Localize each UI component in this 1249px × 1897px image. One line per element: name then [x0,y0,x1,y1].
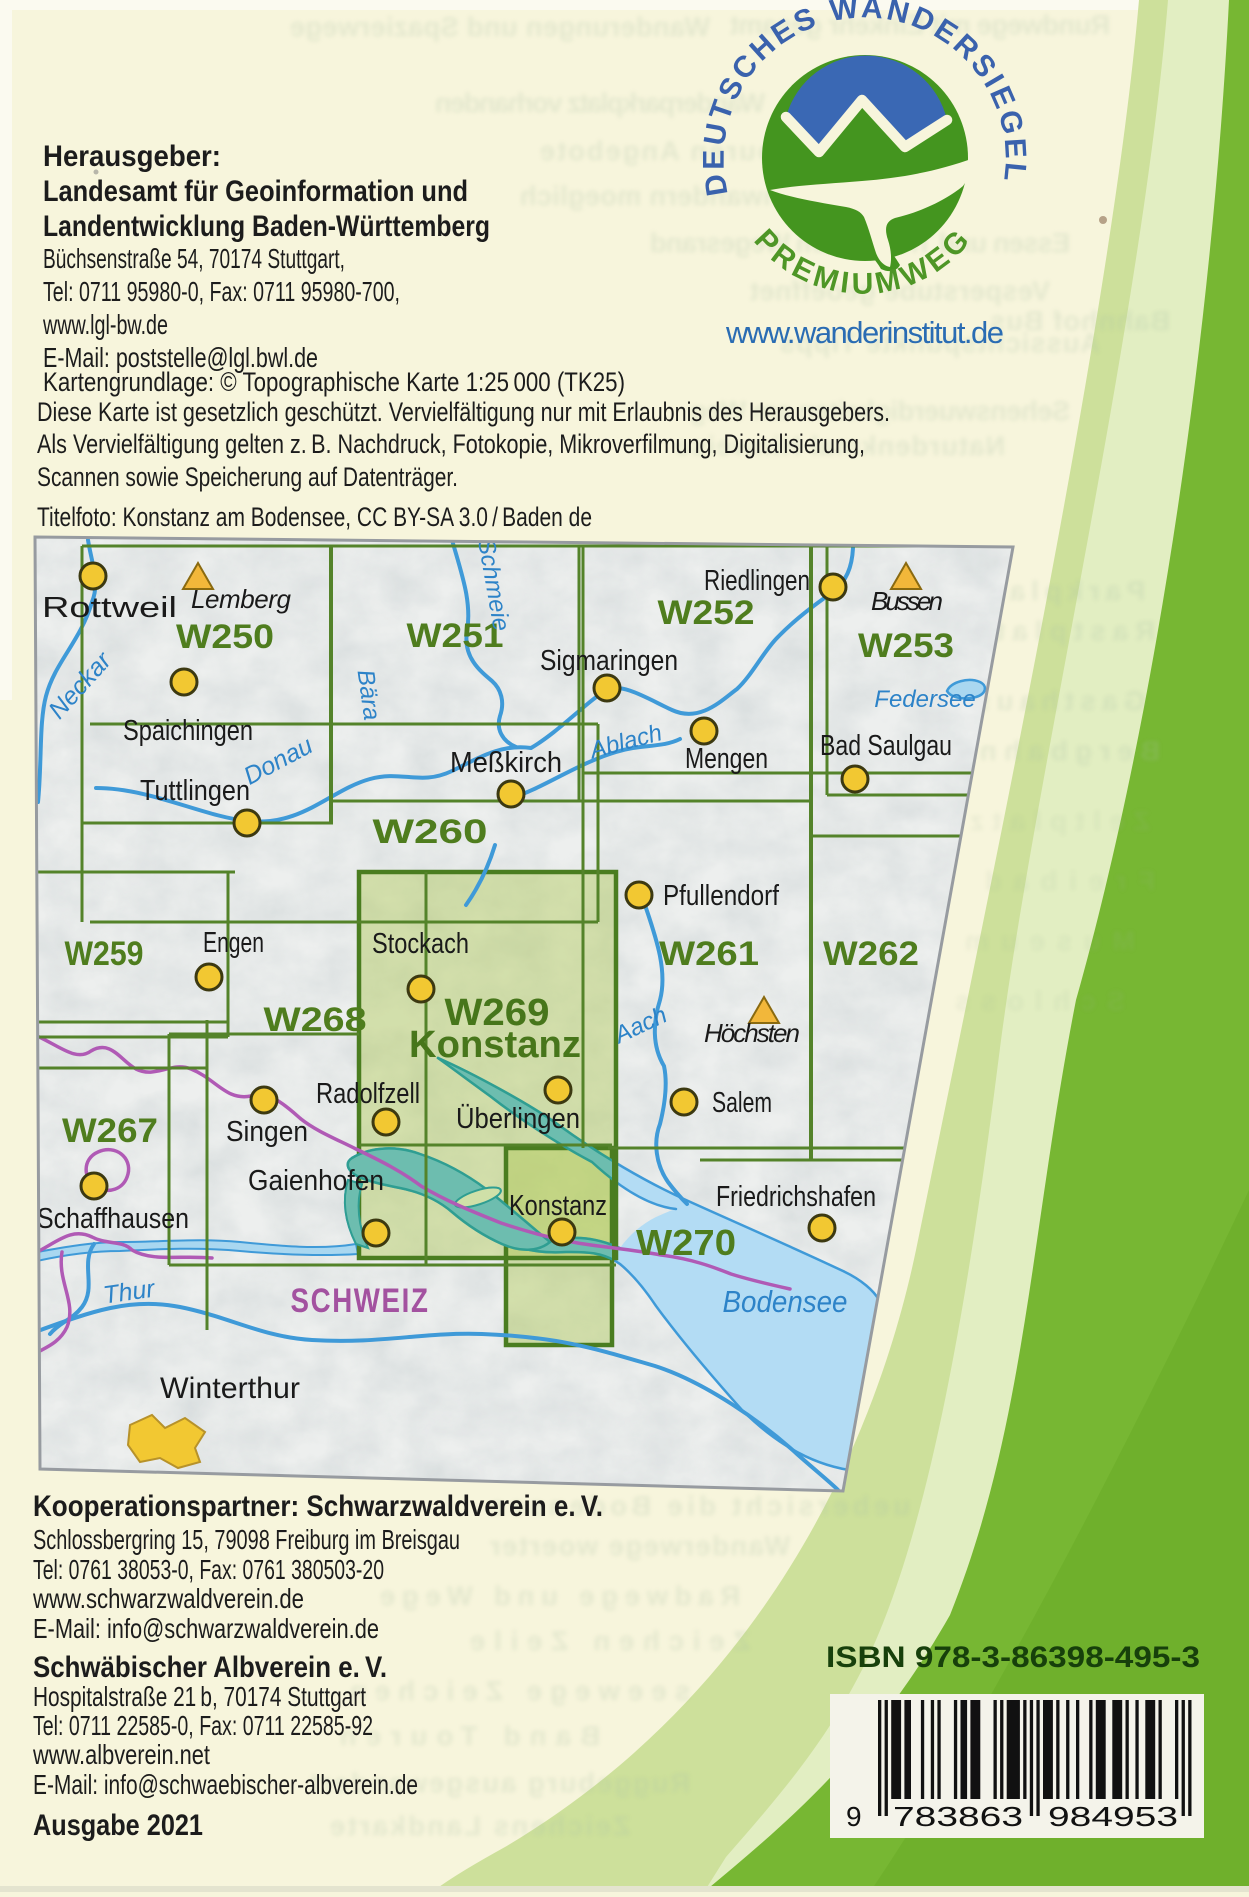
svg-text:E-Mail: info@schwarzwaldverein: E-Mail: info@schwarzwaldverein.de [33,1613,379,1644]
svg-text:9: 9 [846,1801,862,1832]
svg-text:Kooperationspartner: Schwarzwa: Kooperationspartner: Schwarzwaldverein e… [33,1490,603,1523]
svg-text:W259: W259 [65,935,144,973]
svg-text:Büchsenstraße 54, 70174 Stuttg: Büchsenstraße 54, 70174 Stuttgart, [43,243,345,274]
svg-text:Tel: 0711 22585-0, Fax: 0711 2: Tel: 0711 22585-0, Fax: 0711 22585-92 [33,1710,373,1741]
svg-text:Friedrichshafen: Friedrichshafen [716,1181,876,1213]
svg-text:www.schwarzwaldverein.de: www.schwarzwaldverein.de [32,1583,304,1614]
svg-text:Hospitalstraße 21 b, 70174 Stu: Hospitalstraße 21 b, 70174 Stuttgart [33,1681,366,1712]
svg-text:Landesamt für Geoinformation u: Landesamt für Geoinformation und [43,175,468,208]
svg-text:Spaichingen: Spaichingen [123,715,253,747]
svg-text:W267: W267 [62,1112,158,1150]
svg-text:Bad Saulgau: Bad Saulgau [820,730,952,762]
svg-text:Schwäbischer Albverein e. V.: Schwäbischer Albverein e. V. [33,1651,387,1684]
svg-text:W260: W260 [373,813,488,851]
svg-text:Federsee: Federsee [874,686,975,713]
svg-text:Salem: Salem [712,1087,772,1119]
svg-text:Landentwicklung Baden-Württemb: Landentwicklung Baden-Württemberg [43,210,490,243]
svg-text:Sigmaringen: Sigmaringen [540,645,678,677]
svg-text:ISBN 978-3-86398-495-3: ISBN 978-3-86398-495-3 [826,1641,1200,1674]
svg-text:W252: W252 [658,594,755,632]
svg-text:984953: 984953 [1048,1801,1178,1832]
svg-text:W250: W250 [176,618,274,656]
svg-text:Bussen: Bussen [871,586,943,616]
svg-text:Winterthur: Winterthur [160,1372,300,1405]
svg-text:Tel: 0711 95980-0, Fax: 0711 9: Tel: 0711 95980-0, Fax: 0711 95980-700, [43,276,400,307]
svg-text:Stockach: Stockach [372,928,469,960]
svg-text:E-Mail: info@schwaebischer-alb: E-Mail: info@schwaebischer-albverein.de [33,1769,418,1800]
svg-text:Rastplatz: Rastplatz [975,616,1155,646]
svg-text:Gaienhofen: Gaienhofen [248,1165,384,1197]
svg-text:Singen: Singen [226,1116,308,1148]
svg-text:Höchsten: Höchsten [704,1018,800,1048]
svg-text:Bahnhof Bus: Bahnhof Bus [990,306,1170,336]
svg-text:Engen: Engen [203,927,264,959]
svg-text:Mengen: Mengen [685,743,768,775]
svg-text:W268: W268 [264,1001,367,1039]
svg-text:Zeltplatz: Zeltplatz [970,806,1150,836]
svg-text:Tuttlingen: Tuttlingen [140,775,250,807]
svg-text:Tel: 0761 38053-0, Fax: 0761 3: Tel: 0761 38053-0, Fax: 0761 380503-20 [33,1554,384,1585]
svg-text:Radolfzell: Radolfzell [316,1078,420,1110]
svg-text:W270: W270 [636,1222,736,1263]
svg-text:www.wanderinstitut.de: www.wanderinstitut.de [725,315,1004,350]
svg-text:Wanderwege woerter: Wanderwege woerter [490,1531,790,1561]
svg-text:SCHWEIZ: SCHWEIZ [291,1282,430,1320]
svg-text:www.lgl-bw.de: www.lgl-bw.de [42,309,168,340]
svg-text:Wanderungen und Spazierwege: Wanderungen und Spazierwege [290,12,710,42]
svg-text:Kartengrundlage: © Topographis: Kartengrundlage: © Topographische Karte … [43,367,625,397]
svg-text:Bodensee: Bodensee [723,1284,848,1319]
svg-text:Pfullendorf: Pfullendorf [663,880,780,912]
svg-text:W262: W262 [823,935,919,973]
svg-text:783863: 783863 [893,1801,1023,1832]
svg-text:Scannen sowie Speicherung auf: Scannen sowie Speicherung auf Datenträge… [37,462,458,492]
svg-text:Rottweil: Rottweil [42,592,177,624]
svg-text:W261: W261 [659,935,759,973]
svg-text:Riedlingen: Riedlingen [704,565,810,597]
svg-text:Schlossbergring 15, 79098 Frei: Schlossbergring 15, 79098 Freiburg im Br… [33,1524,460,1555]
svg-text:Konstanz: Konstanz [509,1190,607,1222]
svg-text:Konstanz: Konstanz [409,1024,581,1066]
svg-text:Titelfoto: Konstanz am Bodense: Titelfoto: Konstanz am Bodensee, CC BY-S… [37,502,592,532]
svg-text:Band Touren: Band Touren [340,1721,600,1751]
svg-text:Überlingen: Überlingen [456,1103,580,1135]
svg-text:W253: W253 [858,627,954,665]
svg-text:Diese Karte ist gesetzlich ges: Diese Karte ist gesetzlich geschützt. Ve… [37,397,890,427]
svg-text:www.albverein.net: www.albverein.net [32,1739,210,1770]
svg-text:Herausgeber:: Herausgeber: [43,140,221,173]
svg-text:Schaffhausen: Schaffhausen [37,1203,189,1235]
svg-text:Ausgabe 2021: Ausgabe 2021 [33,1809,203,1842]
svg-text:Meßkirch: Meßkirch [450,747,562,779]
svg-text:Lemberg: Lemberg [191,584,292,614]
svg-text:Als Vervielfältigung gelten z.: Als Vervielfältigung gelten z. B. Nachdr… [37,429,865,459]
